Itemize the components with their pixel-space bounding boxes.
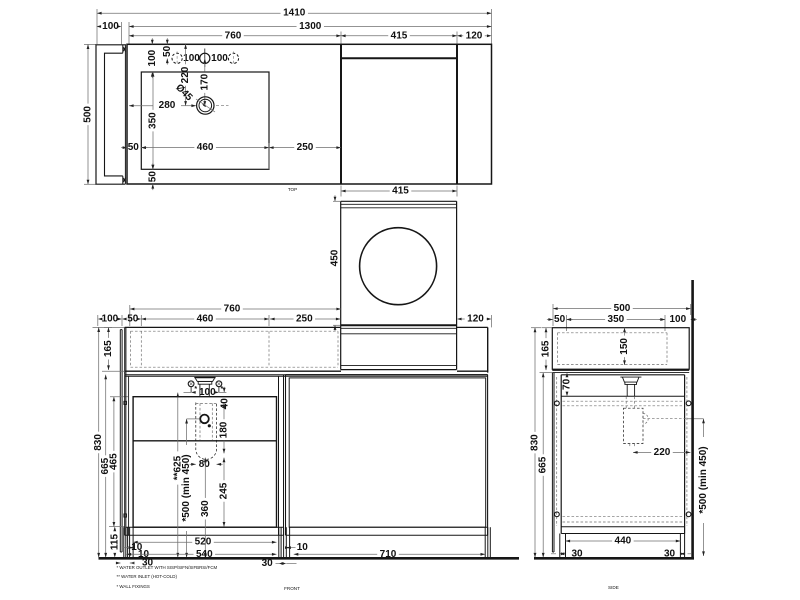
svg-text:360: 360: [200, 500, 211, 517]
svg-text:280: 280: [159, 100, 176, 111]
svg-text:165: 165: [103, 340, 114, 357]
svg-text:50: 50: [128, 142, 140, 153]
svg-text:350: 350: [608, 314, 625, 325]
svg-text:FRONT: FRONT: [284, 586, 300, 591]
svg-text:115: 115: [109, 534, 120, 551]
svg-text:70: 70: [562, 378, 573, 390]
svg-text:1410: 1410: [283, 8, 306, 19]
svg-text:760: 760: [224, 304, 241, 315]
svg-text:415: 415: [392, 186, 409, 197]
svg-text:250: 250: [296, 314, 313, 325]
svg-text:450: 450: [330, 249, 341, 266]
svg-text:50: 50: [554, 314, 566, 325]
svg-text:120: 120: [467, 314, 484, 325]
svg-text:* WATER OUTLET WITH SISP/SIFN: * WATER OUTLET WITH SISP/SIFN/SIFBRSI/FC…: [117, 565, 218, 570]
svg-text:* WALL FIXINGS: * WALL FIXINGS: [117, 584, 150, 589]
svg-text:50: 50: [147, 171, 158, 183]
svg-text:*500 (min 450): *500 (min 450): [698, 446, 709, 513]
svg-text:350: 350: [148, 112, 159, 129]
svg-text:100: 100: [102, 21, 119, 32]
svg-text:415: 415: [391, 30, 408, 41]
svg-text:500: 500: [83, 106, 94, 123]
svg-text:150: 150: [619, 338, 630, 355]
svg-text:*500 (min 450): *500 (min 450): [181, 454, 192, 521]
svg-text:465: 465: [108, 453, 119, 470]
svg-text:1300: 1300: [299, 21, 322, 32]
svg-text:100: 100: [669, 314, 686, 325]
svg-text:50: 50: [162, 45, 173, 57]
svg-text:170: 170: [199, 73, 210, 90]
svg-text:220: 220: [180, 66, 191, 83]
svg-text:100: 100: [211, 53, 228, 64]
svg-text:*: *: [221, 386, 224, 393]
svg-text:165: 165: [541, 340, 552, 357]
svg-text:10: 10: [297, 542, 309, 553]
svg-text:220: 220: [654, 447, 671, 458]
svg-text:460: 460: [197, 142, 214, 153]
svg-text:830: 830: [93, 434, 104, 451]
svg-text:30: 30: [262, 558, 274, 569]
svg-text:** WATER INLET (HOT-COLD): ** WATER INLET (HOT-COLD): [117, 574, 178, 579]
svg-text:SIDE: SIDE: [608, 585, 619, 590]
svg-text:100: 100: [147, 49, 158, 66]
svg-text:830: 830: [530, 434, 541, 451]
svg-text:50: 50: [127, 314, 139, 325]
svg-text:250: 250: [297, 142, 314, 153]
svg-text:100: 100: [102, 314, 119, 325]
svg-text:100: 100: [199, 387, 216, 398]
svg-text:760: 760: [225, 30, 242, 41]
svg-text:245: 245: [219, 482, 230, 499]
svg-text:TOP: TOP: [288, 187, 297, 192]
svg-text:440: 440: [615, 536, 632, 547]
svg-text:180: 180: [219, 421, 230, 438]
svg-text:665: 665: [538, 456, 549, 473]
svg-text:520: 520: [195, 537, 212, 548]
svg-text:500: 500: [614, 303, 631, 314]
svg-text:460: 460: [197, 314, 214, 325]
svg-text:120: 120: [466, 30, 483, 41]
